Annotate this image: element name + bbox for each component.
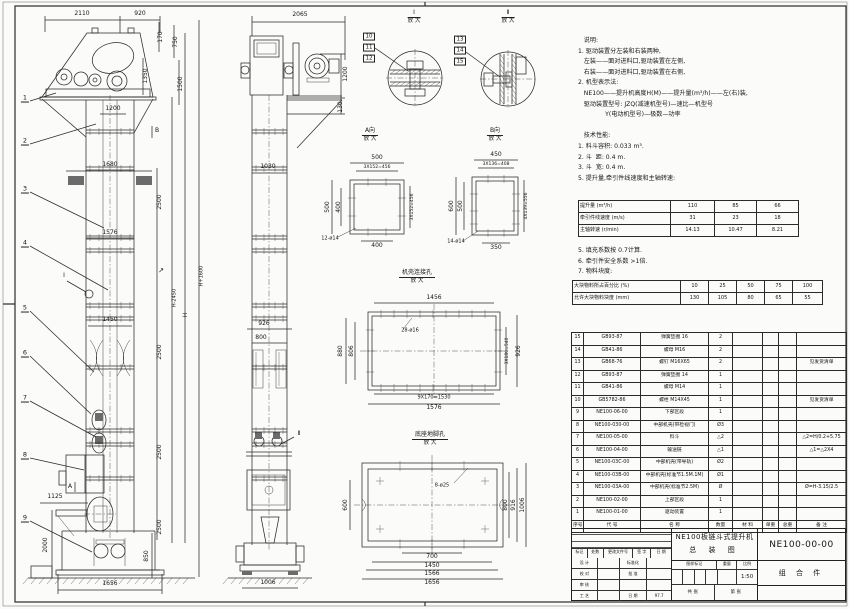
- bom-cell: [763, 395, 779, 408]
- bom-cell: [733, 508, 763, 521]
- performance-cell: 18: [757, 213, 799, 225]
- bom-cell: [779, 370, 797, 383]
- bom-cell: 2: [709, 333, 733, 346]
- part-balloon-14: 14: [454, 47, 466, 55]
- bom-cell: [763, 433, 779, 446]
- view-caption: B向放 大: [487, 127, 503, 142]
- performance-cell: 牵引件线速度 (m/s): [579, 213, 671, 225]
- part-balloon-2: 2: [21, 138, 29, 146]
- dim-label: Ⅱ: [298, 431, 301, 437]
- part-balloon-12: 12: [363, 55, 375, 63]
- bom-cell: 15: [572, 333, 584, 346]
- dim-label: 880: [338, 345, 344, 356]
- performance-cell: 14.13: [671, 225, 715, 237]
- performance-row: 提升量 (m³/h)1108566: [579, 201, 799, 213]
- bom-cell: [733, 345, 763, 358]
- performance-cell: 110: [671, 201, 715, 213]
- caption-title: A向: [362, 127, 378, 136]
- dim-label: 750: [173, 36, 179, 47]
- title-block: 标记处数更改文件号签 字日 期 设 计标准化校 对批 准审 核工 艺日 期97.…: [571, 528, 846, 601]
- bom-cell: [733, 458, 763, 471]
- dim-label: H: [183, 313, 189, 318]
- lump-size-row: 大块物料所占百分比 (%)10255075100: [573, 281, 823, 293]
- bom-cell: [763, 495, 779, 508]
- signature-cell: 设 计: [572, 558, 598, 568]
- part-balloon-10: 10: [363, 33, 375, 41]
- revision-empty-row: [572, 542, 671, 548]
- caption-subtitle: 放 大: [487, 136, 503, 143]
- part-balloon-3: 3: [21, 186, 29, 194]
- dim-label: 14-ø14: [447, 240, 465, 245]
- bom-row: 2NE100-02-00上部区段1: [572, 495, 847, 508]
- caption-title: I: [408, 9, 421, 18]
- bom-cell: 上部区段: [641, 495, 709, 508]
- bom-cell: △2: [709, 433, 733, 446]
- signature-cell: [647, 558, 671, 568]
- notes-description: 说明: 1. 驱动装置分左装和右装两种, 左装——面对进料口,驱动装置在左侧, …: [578, 36, 748, 184]
- bom-cell: NE100-03B-00: [584, 470, 641, 483]
- bom-cell: [779, 508, 797, 521]
- bom-cell: [797, 420, 847, 433]
- mark-label: 图样标记: [672, 561, 717, 569]
- dim-label: 1030: [260, 164, 275, 170]
- dim-label: 700: [426, 554, 437, 560]
- dim-label: 1006: [260, 580, 275, 586]
- sheet-number: 第 张: [715, 585, 758, 600]
- view-caption: A向放 大: [362, 127, 378, 142]
- signature-cell: 审 核: [572, 580, 598, 590]
- bom-cell: 3: [572, 483, 584, 496]
- dim-label: 400: [371, 243, 382, 249]
- dim-label: B: [155, 128, 159, 134]
- revision-header-cell: 处数: [588, 549, 604, 558]
- bom-cell: 料斗: [641, 433, 709, 446]
- dim-label: 1656: [424, 580, 439, 586]
- bom-cell: Ø2: [709, 458, 733, 471]
- dim-label: 1200: [105, 106, 120, 112]
- bom-cell: [797, 383, 847, 396]
- generated-linework: [23, 54, 520, 584]
- lump-size-cell: 100: [793, 281, 823, 293]
- part-balloon-9: 9: [21, 515, 29, 523]
- dim-label: 850: [144, 550, 150, 561]
- bom-cell: △1: [709, 445, 733, 458]
- bom-cell: 中部机壳(带导轨): [641, 458, 709, 471]
- bom-row: 10GB5782-86螺栓 M14X451见发货清单: [572, 395, 847, 408]
- blank-cell: [758, 586, 845, 600]
- bom-cell: NE100-05-00: [584, 433, 641, 446]
- signature-cell: [598, 558, 620, 568]
- dim-label: 2500: [157, 344, 163, 359]
- part-balloon-13: 13: [454, 36, 466, 44]
- title-block-right: NE100-00-00 组 合 件: [758, 529, 845, 600]
- lump-size-cell: 50: [737, 281, 765, 293]
- bom-cell: NE100-02-00: [584, 495, 641, 508]
- view-caption: 机壳连接孔放 大: [399, 269, 435, 284]
- bom-cell: 1: [572, 508, 584, 521]
- revision-header-cell: 更改文件号: [604, 549, 634, 558]
- lump-size-cell: 25: [709, 281, 737, 293]
- bom-cell: [779, 408, 797, 421]
- scale-label: 比例: [737, 561, 757, 569]
- caption-subtitle: 放 大: [502, 18, 515, 25]
- dim-label: 1576: [102, 230, 117, 236]
- bom-cell: [763, 358, 779, 371]
- bom-row: 12GB93-87弹簧垫圈 141: [572, 370, 847, 383]
- part-balloon-1: 1: [21, 95, 29, 103]
- weight-value: [718, 570, 738, 584]
- caption-title: 底座地脚孔: [412, 431, 448, 440]
- dim-label: 920: [134, 11, 145, 17]
- bom-cell: [779, 333, 797, 346]
- bom-cell: 螺钉 M16X65: [641, 358, 709, 371]
- bom-cell: 7: [572, 433, 584, 446]
- lump-size-cell: 80: [737, 293, 765, 305]
- dim-label: 500: [458, 200, 464, 211]
- bom-cell: [733, 370, 763, 383]
- bom-cell: 弹簧垫圈 16: [641, 333, 709, 346]
- signature-row: 审 核: [572, 580, 671, 591]
- signature-rows: 设 计标准化校 对批 准审 核工 艺日 期97.7: [572, 558, 671, 602]
- dim-label: 9X170=1530: [417, 396, 450, 401]
- bom-cell: [733, 495, 763, 508]
- bom-cell: 螺母 M16: [641, 345, 709, 358]
- drawing-type: 总 装 图: [672, 545, 757, 555]
- bom-cell: [733, 470, 763, 483]
- revision-header-cell: 签 字: [633, 549, 651, 558]
- bom-cell: [763, 383, 779, 396]
- signature-cell: 工 艺: [572, 591, 598, 602]
- performance-cell: 提升量 (m³/h): [579, 201, 671, 213]
- dim-label: 500: [371, 155, 382, 161]
- caption-subtitle: 放 大: [412, 440, 448, 447]
- bom-cell: 弹簧垫圈 14: [641, 370, 709, 383]
- bom-cell: 驱动装置: [641, 508, 709, 521]
- dim-label: 2000: [43, 537, 49, 552]
- dim-label: 2065: [292, 12, 307, 18]
- detail-II-view: [480, 50, 536, 108]
- notes-material: 5. 填充系数按 0.7计算. 6. 牵引件安全系数 >1倍. 7. 物料块度:: [578, 246, 647, 278]
- bom-row: 3NE100-03A-00中部机壳(标准节2.5M)ØØ=H-3.15/2.5: [572, 483, 847, 496]
- bom-cell: 中部机壳(标准节1.5M.1M): [641, 470, 709, 483]
- bom-cell: GB93-87: [584, 333, 641, 346]
- bom-cell: [733, 408, 763, 421]
- bom-cell: 12: [572, 370, 584, 383]
- bom-cell: [779, 458, 797, 471]
- performance-row: 牵引件线速度 (m/s)312318: [579, 213, 799, 225]
- revision-empty-rows: [572, 529, 671, 549]
- part-balloon-8: 8: [21, 452, 29, 460]
- dim-label: 3X152=456: [411, 194, 416, 221]
- bom-cell: 1: [709, 495, 733, 508]
- lump-size-row: 允许大块物料块度 (mm)130105806555: [573, 293, 823, 305]
- bom-cell: [797, 508, 847, 521]
- dim-label: 1350: [143, 68, 149, 83]
- bom-cell: [763, 445, 779, 458]
- bom-cell: [733, 433, 763, 446]
- engineering-drawing-sheet: 2110920170750135015001200168015761450250…: [0, 0, 850, 609]
- section-B-view: [463, 177, 518, 241]
- performance-row: 主轴转速 (r/min)14.1310.478.21: [579, 225, 799, 237]
- caption-subtitle: 放 大: [408, 18, 421, 25]
- dim-label: 28-ø16: [401, 329, 419, 334]
- lump-size-cell: 75: [765, 281, 793, 293]
- bom-cell: NE100-03C-00: [584, 458, 641, 471]
- bom-cell: 1: [709, 408, 733, 421]
- dim-label: 1450: [102, 317, 117, 323]
- dim-label: 1200: [343, 66, 349, 81]
- sheet-count-row: 共 张 第 张: [672, 585, 757, 600]
- bom-cell: GB5782-86: [584, 395, 641, 408]
- signature-cell: 校 对: [572, 569, 598, 579]
- bom-cell: 1: [709, 508, 733, 521]
- dim-label: 1456: [426, 295, 441, 301]
- signature-cell: [647, 569, 671, 579]
- dim-label: 400: [336, 201, 342, 212]
- bom-cell: GB68-76: [584, 358, 641, 371]
- title-block-center: NE100板链斗式提升机 总 装 图 图样标记 重量 比例 1:50 共 张 第…: [672, 529, 758, 600]
- dim-label: 1656: [102, 581, 117, 587]
- dim-label: 1450: [424, 563, 439, 569]
- part-balloon-6: 6: [21, 350, 29, 358]
- dim-label: 130: [338, 101, 344, 112]
- part-balloon-4: 4: [21, 240, 29, 248]
- bom-cell: 1: [709, 370, 733, 383]
- lump-size-cell: 55: [793, 293, 823, 305]
- drawing-title: NE100板链斗式提升机 总 装 图: [672, 529, 757, 561]
- bom-cell: 1: [709, 395, 733, 408]
- lump-size-cell: 10: [681, 281, 709, 293]
- mark-cell: [706, 570, 717, 584]
- drawing-number: NE100-00-00: [758, 529, 845, 561]
- bom-cell: [797, 458, 847, 471]
- signature-cell: [598, 591, 620, 602]
- bom-cell: [733, 383, 763, 396]
- bom-parts-table: 15GB93-87弹簧垫圈 16214GB41-86螺母 M16213GB68-…: [571, 332, 847, 533]
- dim-label: 600: [449, 200, 455, 211]
- revision-header: 标记处数更改文件号签 字日 期: [572, 549, 671, 558]
- signature-cell: [598, 569, 620, 579]
- dim-label: 1566: [424, 571, 439, 577]
- bom-row: 9NE100-06-00下部区段1: [572, 408, 847, 421]
- dim-label: 806: [349, 345, 355, 356]
- bom-cell: 下部区段: [641, 408, 709, 421]
- dim-label: I: [63, 273, 65, 279]
- dim-label: 2500: [157, 519, 163, 534]
- signature-cell: [647, 580, 671, 590]
- signature-cell: 标准化: [620, 558, 648, 568]
- bom-cell: 14: [572, 345, 584, 358]
- signature-cell: [598, 580, 620, 590]
- bom-cell: [797, 470, 847, 483]
- dim-label: 800: [503, 499, 509, 510]
- bom-cell: 见发货清单: [797, 358, 847, 371]
- bom-cell: [763, 333, 779, 346]
- part-balloon-11: 11: [363, 44, 375, 52]
- revision-header-cell: 标记: [572, 549, 588, 558]
- dim-label: 3X152=456: [364, 166, 391, 171]
- section-A-view: [338, 180, 404, 237]
- bom-cell: [779, 395, 797, 408]
- bom-row: 5NE100-03C-00中部机壳(带导轨)Ø2: [572, 458, 847, 471]
- bom-cell: 螺母 M14: [641, 383, 709, 396]
- signature-row: 工 艺日 期97.7: [572, 591, 671, 602]
- bom-cell: [733, 483, 763, 496]
- sheets-total: 共 张: [672, 585, 715, 600]
- signature-cell: 97.7: [647, 591, 671, 602]
- bom-cell: NE100-06-00: [584, 408, 641, 421]
- bom-cell: [763, 370, 779, 383]
- dim-label: 600: [343, 499, 349, 510]
- bom-cell: [779, 345, 797, 358]
- bom-cell: 4: [572, 470, 584, 483]
- casing-connection-holes-view: [360, 304, 508, 398]
- dim-label: A: [68, 484, 72, 490]
- dim-label: 500: [325, 201, 331, 212]
- lump-size-cell: 允许大块物料块度 (mm): [573, 293, 681, 305]
- caption-title: Ⅱ: [502, 9, 515, 18]
- bom-cell: 2: [572, 495, 584, 508]
- bom-cell: [797, 495, 847, 508]
- mark-cell: [683, 570, 694, 584]
- performance-cell: 10.47: [715, 225, 757, 237]
- bom-cell: NE100-03A-00: [584, 483, 641, 496]
- mark-cell: [672, 570, 683, 584]
- bom-cell: 中部机壳(标准节2.5M): [641, 483, 709, 496]
- bom-cell: [779, 420, 797, 433]
- dim-label: 2500: [157, 444, 163, 459]
- performance-cell: 31: [671, 213, 715, 225]
- bom-cell: 10: [572, 395, 584, 408]
- bom-cell: 11: [572, 383, 584, 396]
- signature-cell: [620, 580, 648, 590]
- caption-subtitle: 放 大: [362, 136, 378, 143]
- bom-cell: [779, 358, 797, 371]
- bom-cell: 13: [572, 358, 584, 371]
- dim-label: 12-ø14: [321, 237, 339, 242]
- bom-cell: [779, 445, 797, 458]
- performance-cell: 23: [715, 213, 757, 225]
- signature-cell: 日 期: [620, 591, 648, 602]
- performance-cell: 85: [715, 201, 757, 213]
- bom-cell: [797, 333, 847, 346]
- dim-label: 1006: [520, 497, 526, 512]
- bom-row: 7NE100-05-00料斗△2△2=H/0.2+5.75: [572, 433, 847, 446]
- dim-label: 1500: [178, 76, 184, 91]
- dim-label: 350: [490, 245, 501, 251]
- dim-label: H+1600: [200, 266, 205, 287]
- part-balloon-15: 15: [454, 58, 466, 66]
- bom-row: 13GB68-76螺钉 M16X652见发货清单: [572, 358, 847, 371]
- bom-cell: 8: [572, 420, 584, 433]
- part-type: 组 合 件: [758, 561, 845, 586]
- dim-label: 1680: [102, 162, 117, 168]
- bom-cell: 1: [709, 383, 733, 396]
- signature-row: 设 计标准化: [572, 558, 671, 569]
- bom-cell: [779, 495, 797, 508]
- bom-cell: 2: [709, 345, 733, 358]
- title-block-signatures: 标记处数更改文件号签 字日 期 设 计标准化校 对批 准审 核工 艺日 期97.…: [572, 529, 672, 600]
- signature-cell: 批 准: [620, 569, 648, 579]
- bom-cell: [763, 470, 779, 483]
- dim-label: ↗: [158, 268, 164, 275]
- bom-row: 11GB41-86螺母 M141: [572, 383, 847, 396]
- bom-cell: GB93-87: [584, 370, 641, 383]
- lump-size-cell: 65: [765, 293, 793, 305]
- bom-cell: 2: [709, 358, 733, 371]
- dim-label: 1576: [426, 405, 441, 411]
- dim-label: 8-ø25: [435, 484, 449, 489]
- dim-label: H-2450: [173, 289, 178, 307]
- side-elevation-view: [236, 36, 342, 575]
- view-caption: Ⅱ放 大: [502, 9, 515, 24]
- product-name: NE100板链斗式提升机: [672, 532, 757, 542]
- dim-label: 3X136=408: [483, 163, 510, 168]
- view-caption: 底座地脚孔放 大: [412, 431, 448, 446]
- bom-cell: [763, 420, 779, 433]
- bom-row: 6NE100-04-00输送链△1△1=△2X4: [572, 445, 847, 458]
- bom-row: 8NE100-030-00中部机壳(带检视门)Ø3: [572, 420, 847, 433]
- base-anchor-holes-view: [354, 455, 512, 555]
- bom-row: 15GB93-87弹簧垫圈 162: [572, 333, 847, 346]
- lump-size-cell: 大块物料所占百分比 (%): [573, 281, 681, 293]
- part-balloon-5: 5: [21, 305, 29, 313]
- bom-cell: GB41-86: [584, 383, 641, 396]
- bom-cell: 中部机壳(带检视门): [641, 420, 709, 433]
- mark-weight-scale-values: 1:50: [672, 570, 757, 585]
- view-caption: I放 大: [408, 9, 421, 24]
- mark-weight-scale-header: 图样标记 重量 比例: [672, 561, 757, 570]
- bom-cell: Ø3: [709, 420, 733, 433]
- bom-cell: 见发货清单: [797, 395, 847, 408]
- bom-cell: [763, 345, 779, 358]
- dim-label: 926: [516, 345, 522, 356]
- part-balloon-7: 7: [21, 395, 29, 403]
- bom-cell: [733, 358, 763, 371]
- bom-cell: [779, 470, 797, 483]
- bom-cell: 5: [572, 458, 584, 471]
- bom-cell: [733, 333, 763, 346]
- dim-label: 800: [255, 335, 266, 341]
- dim-label: 170: [158, 31, 164, 42]
- bom-cell: [797, 345, 847, 358]
- bom-cell: [733, 395, 763, 408]
- bom-cell: [763, 408, 779, 421]
- bom-cell: [779, 433, 797, 446]
- dim-label: 4X139=556: [525, 193, 530, 220]
- signature-row: 校 对批 准: [572, 569, 671, 580]
- dim-label: 2110: [74, 11, 89, 17]
- caption-subtitle: 放 大: [399, 278, 435, 285]
- bom-cell: Ø=H-3.15/2.5: [797, 483, 847, 496]
- bom-row: 4NE100-03B-00中部机壳(标准节1.5M.1M)Ø1: [572, 470, 847, 483]
- bom-cell: △1=△2X4: [797, 445, 847, 458]
- dim-label: 926: [258, 321, 269, 327]
- bom-row: 14GB41-86螺母 M162: [572, 345, 847, 358]
- bom-cell: Ø1: [709, 470, 733, 483]
- bom-cell: [779, 383, 797, 396]
- bom-cell: [797, 408, 847, 421]
- lump-size-cell: 105: [709, 293, 737, 305]
- scale-value: 1:50: [737, 570, 757, 584]
- bom-cell: [763, 483, 779, 496]
- dim-label: 1125: [47, 494, 62, 500]
- bom-cell: [763, 458, 779, 471]
- revision-header-row: 标记处数更改文件号签 字日 期: [572, 549, 671, 558]
- bom-cell: △2=H/0.2+5.75: [797, 433, 847, 446]
- detail-I-view: [386, 49, 444, 107]
- performance-cell: 8.21: [757, 225, 799, 237]
